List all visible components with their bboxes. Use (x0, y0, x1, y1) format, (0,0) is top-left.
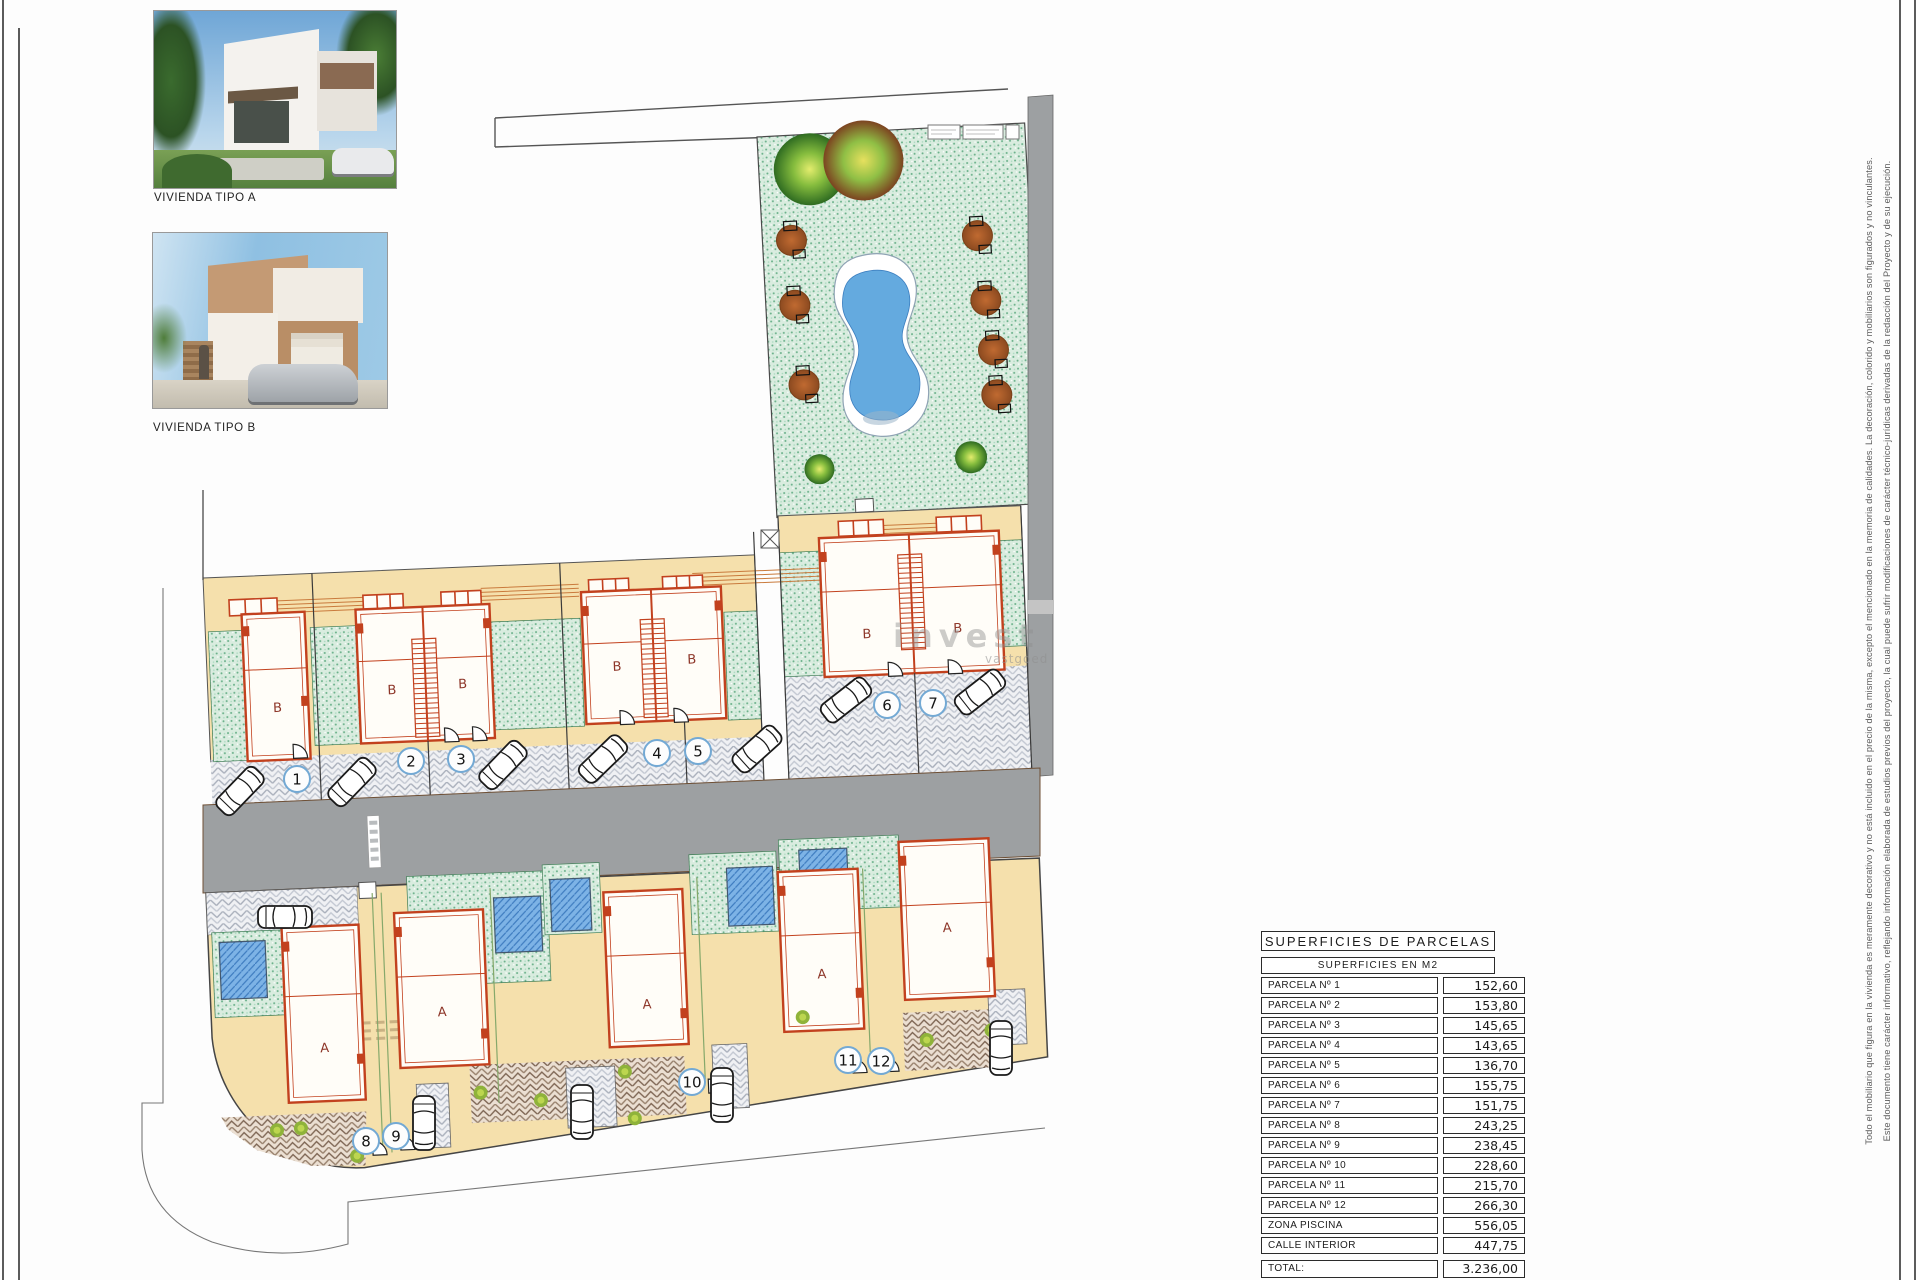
table-row-total: TOTAL: 3.236,00 (1261, 1260, 1529, 1278)
parcel-number-9: 9 (383, 1123, 409, 1149)
house-a-parcel-8 (282, 925, 366, 1103)
table-row-parcela-3: PARCELA Nº 3145,65 (1261, 1017, 1529, 1034)
disclaimer-line-1: Este documento tiene carácter informativ… (1882, 26, 1892, 1276)
total-value: 3.236,00 (1443, 1260, 1525, 1278)
house-a-parcel-9 (394, 909, 489, 1068)
parcel-number-5: 5 (685, 738, 711, 764)
house-a-parcel-10 (603, 889, 688, 1047)
svg-text:8: 8 (361, 1133, 371, 1151)
svg-text:4: 4 (652, 745, 662, 763)
total-label: TOTAL: (1261, 1260, 1438, 1278)
house-letter: B (273, 701, 283, 716)
pool-gate (855, 498, 874, 512)
site-plan: B B B B B B B (0, 0, 1920, 1280)
parcel-number-8: 8 (353, 1128, 379, 1154)
svg-text:11: 11 (838, 1052, 857, 1070)
house-letter: B (687, 652, 697, 667)
house-letter: A (817, 967, 827, 982)
table-row-parcela-6: PARCELA Nº 6155,75 (1261, 1077, 1529, 1094)
parcel-number-6: 6 (874, 692, 900, 718)
house-letter: B (387, 683, 397, 698)
house-a-parcel-11 (778, 869, 865, 1032)
house-letter: B (458, 677, 468, 692)
house-a-parcel-12 (898, 838, 995, 1000)
disclaimer-line-2: Todo el mobiliario que figura en la vivi… (1864, 26, 1874, 1276)
table-row-parcela-5: PARCELA Nº 5136,70 (1261, 1057, 1529, 1074)
svg-text:2: 2 (406, 753, 416, 771)
house-letter: B (862, 627, 872, 642)
table-row-parcela-10: PARCELA Nº 10228,60 (1261, 1157, 1529, 1174)
svg-text:vastgoed: vastgoed (985, 652, 1048, 666)
table-row-calle-interior: CALLE INTERIOR447,75 (1261, 1237, 1529, 1254)
table-row-parcela-11: PARCELA Nº 11215,70 (1261, 1177, 1529, 1194)
table-row-parcela-9: PARCELA Nº 9238,45 (1261, 1137, 1529, 1154)
house-letter: A (320, 1041, 330, 1056)
duplex-b-parcels-4-5 (581, 586, 726, 724)
svg-text:3: 3 (456, 751, 466, 769)
parcel-number-4: 4 (644, 740, 670, 766)
table-row-parcela-8: PARCELA Nº 8243,25 (1261, 1117, 1529, 1134)
parcel-number-7: 7 (920, 690, 946, 716)
house-b-parcel-1 (242, 612, 311, 762)
parcel-number-3: 3 (448, 746, 474, 772)
house-letter: A (642, 997, 652, 1012)
svg-text:9: 9 (391, 1128, 401, 1146)
parcel-number-1: 1 (284, 766, 310, 792)
parcel-number-11: 11 (835, 1047, 861, 1073)
house-letter: B (612, 660, 622, 675)
svg-text:10: 10 (682, 1074, 701, 1092)
zona-piscina (756, 112, 1044, 517)
parcel-number-12: 12 (868, 1048, 894, 1074)
duplex-b-parcels-6-7 (819, 531, 1005, 677)
table-row-parcela-12: PARCELA Nº 12266,30 (1261, 1197, 1529, 1214)
road-island (367, 815, 381, 867)
table-row-parcela-1: PARCELA Nº 1152,60 (1261, 977, 1529, 994)
parcel-number-10: 10 (679, 1069, 705, 1095)
table-subtitle: SUPERFICIES EN M2 (1261, 957, 1495, 974)
table-row-parcela-4: PARCELA Nº 4143,65 (1261, 1037, 1529, 1054)
utility-box (761, 530, 779, 548)
surface-table: SUPERFICIES DE PARCELAS SUPERFICIES EN M… (1261, 931, 1529, 1278)
table-row-zona-piscina: ZONA PISCINA556,05 (1261, 1217, 1529, 1234)
side-lane (1028, 95, 1053, 777)
svg-text:5: 5 (693, 743, 703, 761)
table-row-parcela-2: PARCELA Nº 2153,80 (1261, 997, 1529, 1014)
parcel-number-2: 2 (398, 748, 424, 774)
plan-sheet: VIVIENDA TIPO A VIVIENDA TIPO B (0, 0, 1920, 1280)
house-letter: A (942, 921, 952, 936)
svg-text:12: 12 (871, 1053, 890, 1071)
svg-text:1: 1 (292, 771, 302, 789)
svg-text:7: 7 (928, 695, 938, 713)
svg-text:invest: invest (893, 617, 1040, 655)
house-letter: A (437, 1005, 447, 1020)
table-row-parcela-7: PARCELA Nº 7151,75 (1261, 1097, 1529, 1114)
svg-text:6: 6 (882, 697, 892, 715)
duplex-b-parcels-2-3 (355, 604, 494, 743)
table-title: SUPERFICIES DE PARCELAS (1261, 931, 1495, 951)
